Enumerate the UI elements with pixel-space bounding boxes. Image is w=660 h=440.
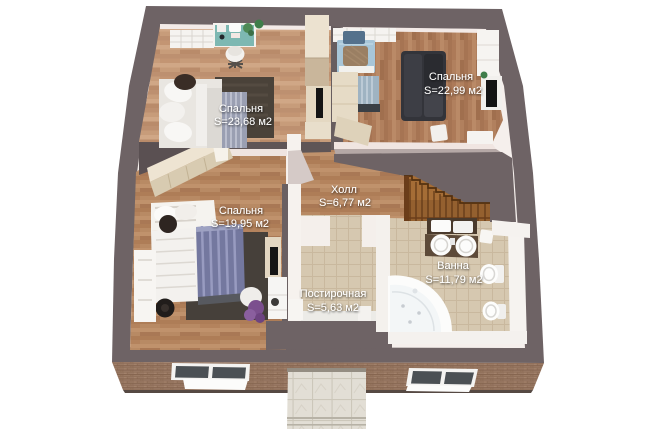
svg-text:S=5,63 м2: S=5,63 м2 — [307, 302, 359, 314]
svg-text:Ванна: Ванна — [437, 260, 470, 272]
svg-text:Спальня: Спальня — [219, 205, 263, 217]
svg-text:Холл: Холл — [331, 184, 357, 196]
svg-text:S=6,77 м2: S=6,77 м2 — [319, 197, 371, 209]
svg-text:Спальня: Спальня — [219, 103, 263, 115]
svg-text:S=11,79 м2: S=11,79 м2 — [425, 274, 482, 286]
svg-text:Постирочная: Постирочная — [300, 288, 367, 300]
svg-text:S=22,99 м2: S=22,99 м2 — [424, 85, 482, 97]
svg-text:S=19,95 м2: S=19,95 м2 — [211, 218, 269, 230]
svg-text:Спальня: Спальня — [429, 71, 473, 83]
svg-text:S=23,68 м2: S=23,68 м2 — [214, 116, 272, 128]
